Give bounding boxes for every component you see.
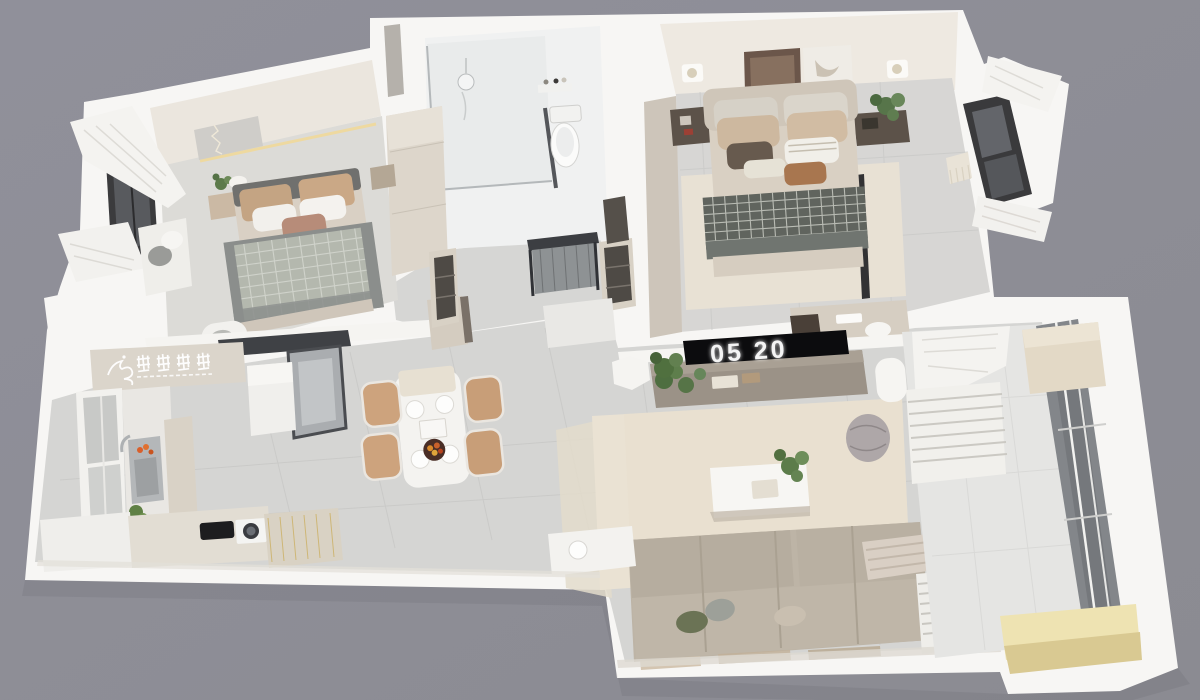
svg-text:05 20: 05 20	[709, 335, 788, 368]
